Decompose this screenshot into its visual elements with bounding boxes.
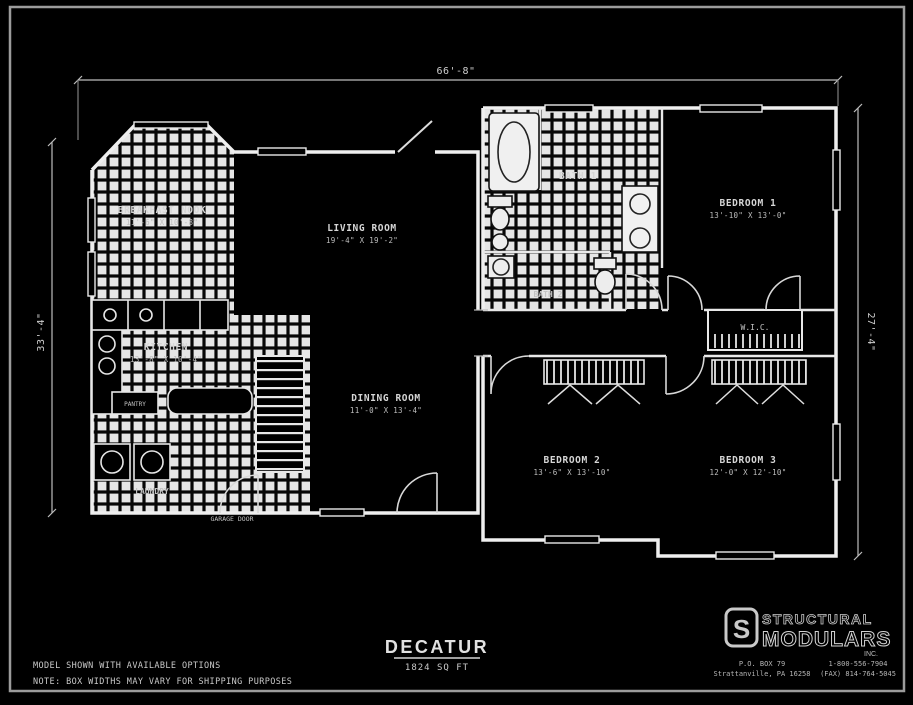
living-room-size: 19'-4" X 19'-2" (326, 236, 398, 245)
left-dimension-label: 33'-4" (36, 312, 47, 351)
note-line-1: MODEL SHOWN WITH AVAILABLE OPTIONS (33, 661, 221, 671)
contact-block: P.O. BOX 79 Strattanville, PA 16258 1-80… (714, 660, 896, 678)
logo-suffix: INC. (864, 651, 878, 658)
right-dimension-label: 27'-4" (865, 312, 876, 351)
phone-line-1: 1-800-556-7904 (828, 660, 887, 668)
company-logo: S STRUCTURAL MODULARS INC. (726, 609, 891, 658)
logo-monogram: S (733, 614, 750, 644)
stairs (256, 356, 304, 472)
laundry-label: LAUNDRY (135, 487, 169, 496)
address-line-2: Strattanville, PA 16258 (714, 670, 811, 678)
hall-opening (474, 310, 488, 356)
dining-room-size: 11'-0" X 13'-4" (350, 406, 422, 415)
bedroom2-closet (544, 360, 644, 404)
dining-room-label: DINING ROOM (351, 393, 421, 404)
kitchen-label: KITCHEN (144, 342, 188, 353)
bedroom3-size: 12'-0" X 12'-10" (709, 468, 786, 477)
logo-line1: STRUCTURAL (762, 611, 873, 627)
logo-line2: MODULARS (762, 628, 891, 651)
garage-door-label: GARAGE DOOR (210, 515, 253, 523)
phone-line-2: (FAX) 814-764-5045 (820, 670, 896, 678)
bedroom3-closet (712, 360, 806, 404)
bath2-label: BATH 2 (534, 290, 563, 299)
model-name: DECATUR (385, 637, 489, 657)
top-dimension-label: 66'-8" (436, 66, 475, 77)
pantry-label: PANTRY (124, 401, 146, 408)
model-area: 1824 SQ FT (405, 663, 469, 673)
bedroom3-label: BEDROOM 3 (720, 455, 777, 466)
bedroom2-label: BEDROOM 2 (544, 455, 601, 466)
floor-plan-drawing: 66'-8" 33'-4" 27'-4" (0, 0, 913, 705)
left-dimension (48, 138, 56, 517)
living-room-label: LIVING ROOM (327, 223, 397, 234)
kitchen-size: 13'-8" X 10'-4" (130, 355, 202, 364)
entry-door-leaf (398, 121, 432, 152)
breakfast-nook-size: 11'-6" X 10'-8" (126, 218, 198, 227)
address-line-1: P.O. BOX 79 (739, 660, 785, 668)
bedroom2-size: 13'-6" X 13'-10" (533, 468, 610, 477)
bedroom1-label: BEDROOM 1 (720, 198, 777, 209)
breakfast-nook-label: BREAKFAST NOOK (118, 205, 206, 216)
note-line-2: NOTE: BOX WIDTHS MAY VARY FOR SHIPPING P… (33, 677, 292, 687)
floor-plan-sheet: 66'-8" 33'-4" 27'-4" (0, 0, 913, 705)
wic-label: W.I.C. (741, 323, 770, 332)
bedroom1-size: 13'-10" X 13'-0" (709, 211, 786, 220)
right-dimension (854, 104, 862, 560)
bath1-label: BATH 1 (559, 171, 597, 182)
